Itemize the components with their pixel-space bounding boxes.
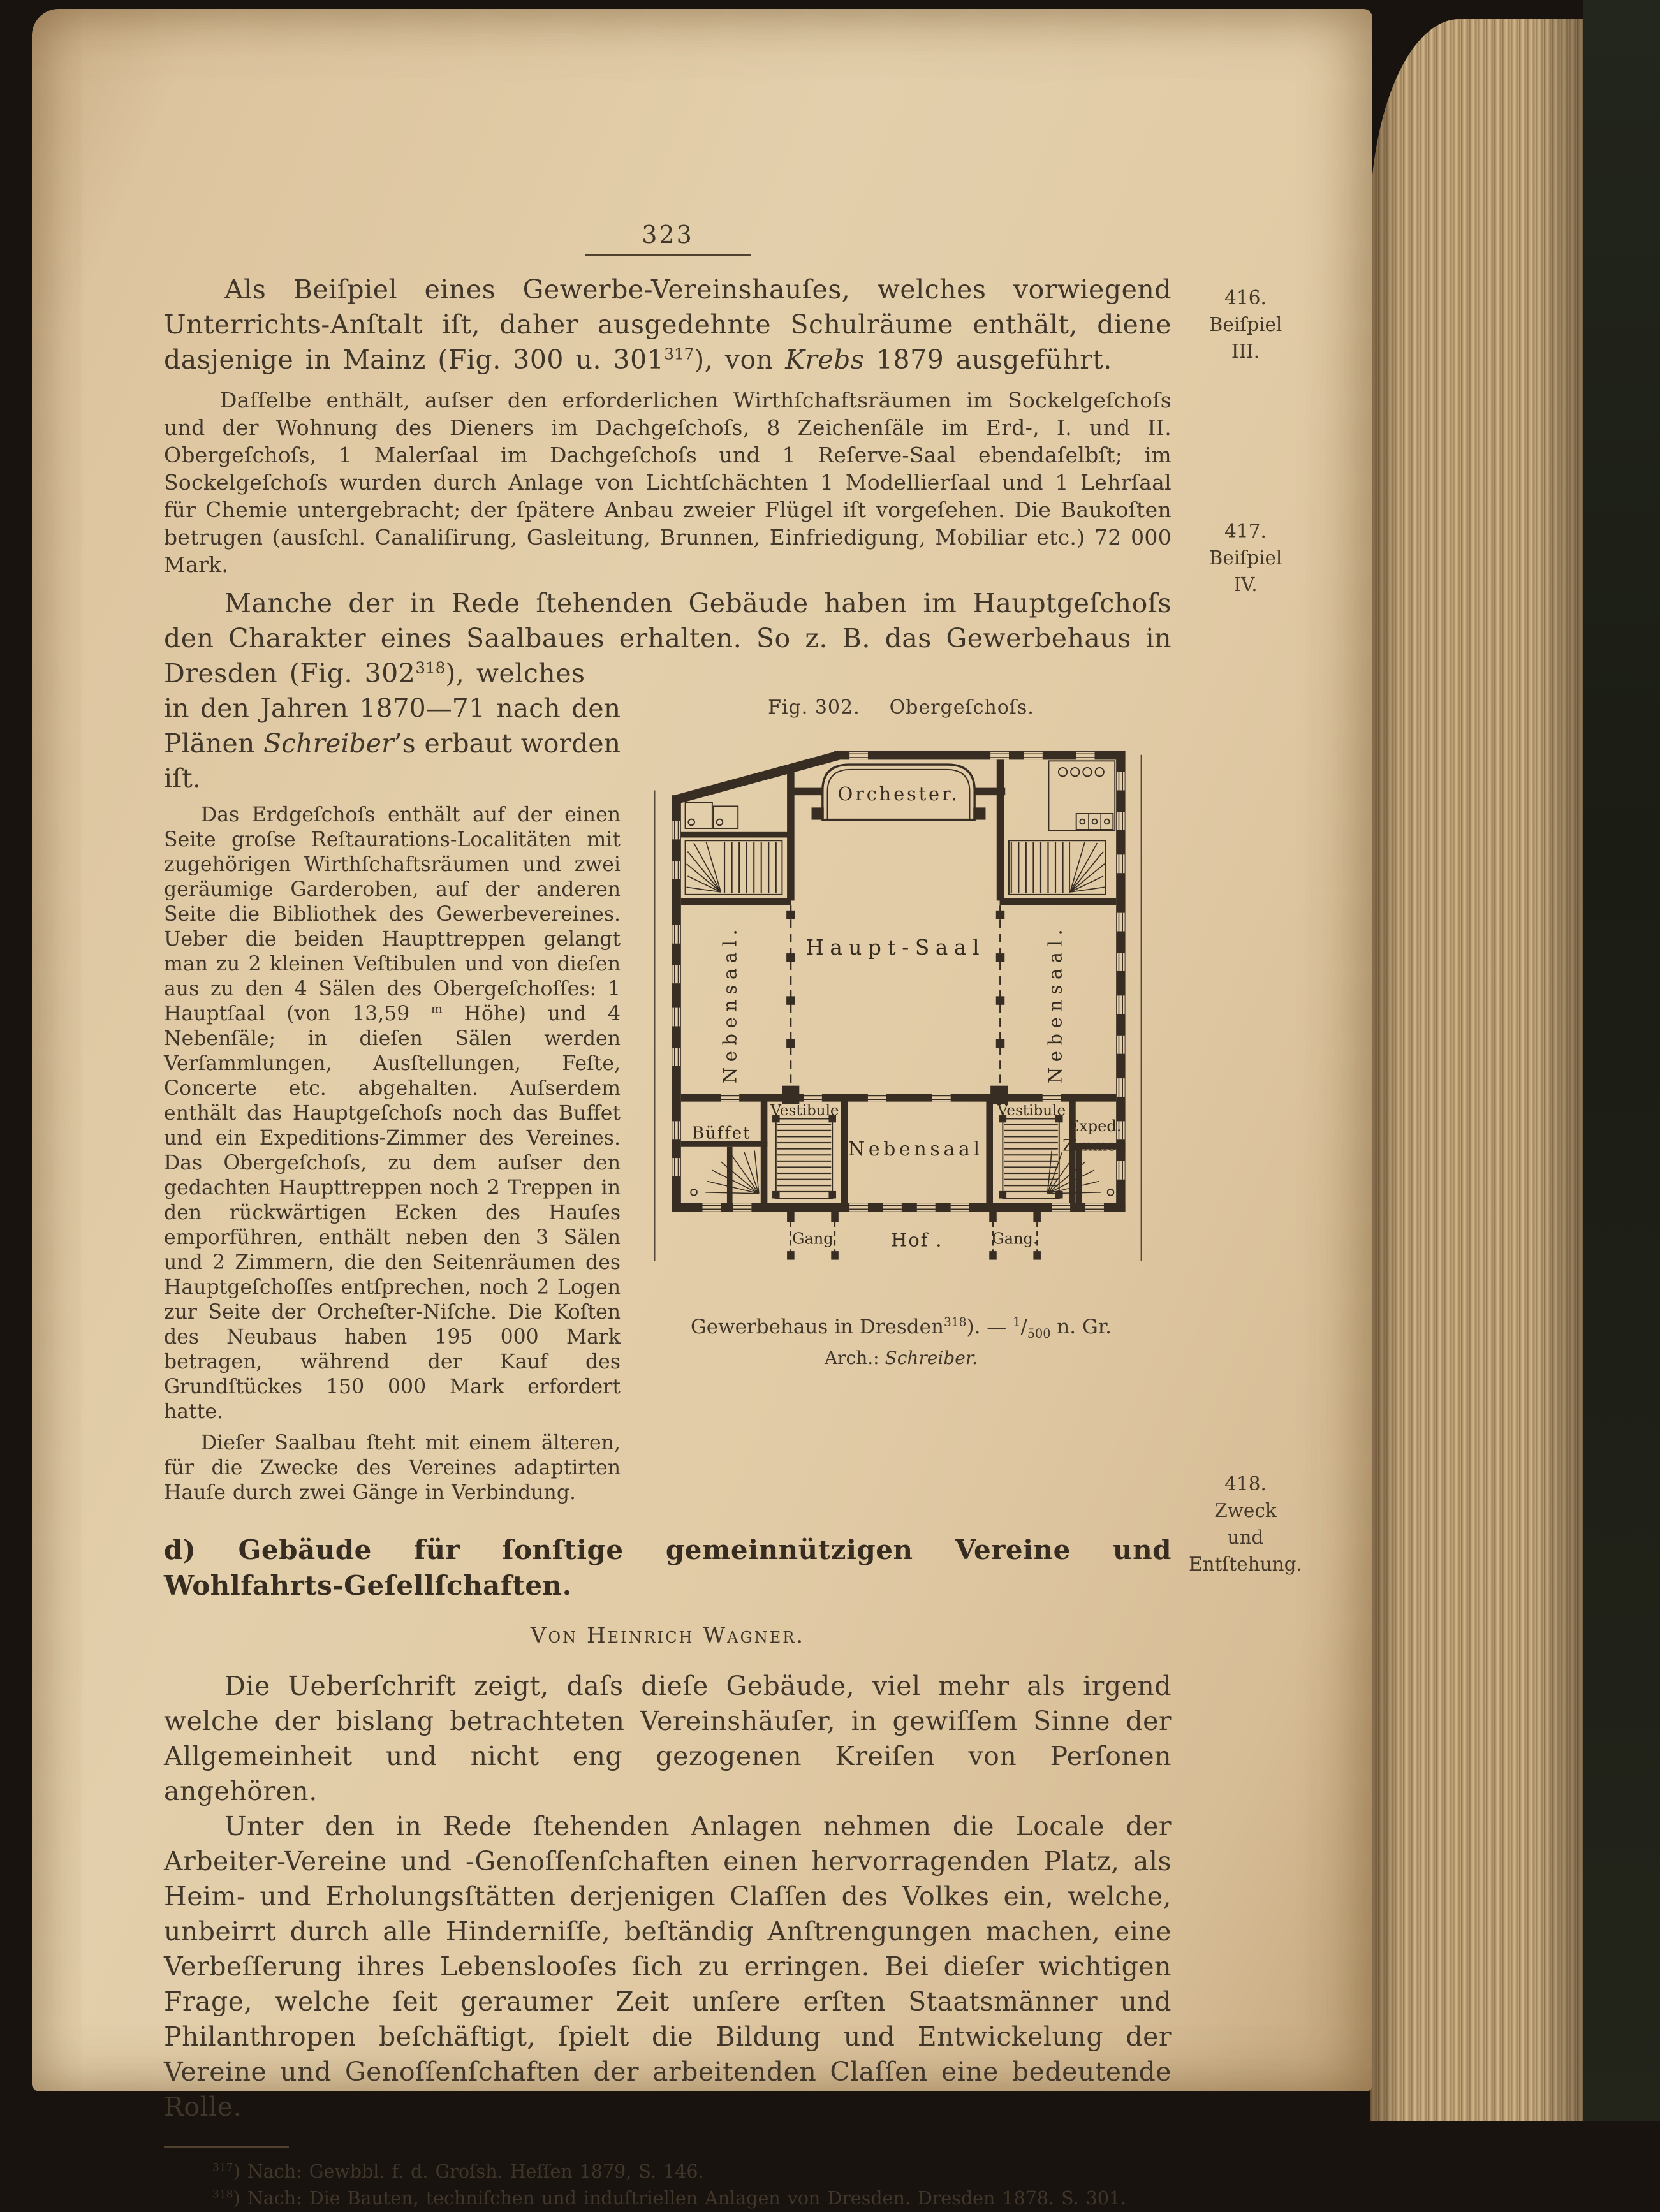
paragraph-text: Höhe) und 4 Nebenſäle; in dieſen Sälen w… — [164, 1002, 621, 1423]
margin-note-line: und — [1172, 1524, 1319, 1551]
footnote-rule — [164, 2146, 289, 2148]
footnote-ref-317: 317 — [664, 344, 694, 363]
margin-note-line: Beiſpiel — [1172, 311, 1319, 338]
book-page: 323 Als Beiſpiel eines Gewerbe-Vereinsha… — [32, 9, 1372, 2091]
margin-note-line: IV. — [1172, 571, 1319, 598]
margin-note-417: 417. Beiſpiel IV. — [1172, 518, 1319, 598]
stair-top-right — [997, 759, 1116, 905]
figure-storey-label: Obergeſchoſs. — [890, 696, 1034, 719]
left-column: in den Jahren 1870—71 nach den Plänen Sc… — [164, 691, 621, 1505]
footnote-318: 318) Nach: Die Bauten, techniſchen und i… — [212, 2185, 1172, 2212]
column-figure-row: in den Jahren 1870—71 nach den Plänen Sc… — [164, 691, 1172, 1505]
footnote-text: ) Nach: Gewbbl. f. d. Groſsh. Heſſen 187… — [233, 2161, 704, 2182]
book-fore-edge — [1370, 19, 1607, 2121]
architect-name: Schreiber — [263, 728, 394, 759]
figure-credit: Arch.: Schreiber. — [621, 1347, 1182, 1368]
paragraph-text: ), von — [694, 344, 785, 375]
figure-caption: Gewerbehaus in Dresden318). — 1/500 n. G… — [621, 1315, 1182, 1338]
paragraph-erdgeschoss: Das Erdgeſchoſs enthält auf der einen Se… — [164, 803, 621, 1425]
room-label-nebensaal-center: Nebensaal — [848, 1138, 983, 1161]
text-block: 323 Als Beiſpiel eines Gewerbe-Vereinsha… — [164, 221, 1172, 2212]
margin-note-416: 416. Beiſpiel III. — [1172, 284, 1319, 365]
footnote-ref-318: 318 — [415, 658, 445, 677]
margin-note-line: Beiſpiel — [1172, 545, 1319, 571]
footnote-317: 317) Nach: Gewbbl. f. d. Groſsh. Heſſen … — [212, 2158, 1172, 2185]
margin-note-number: 416. — [1172, 284, 1319, 311]
figure-title: Fig. 302.Obergeſchoſs. — [621, 696, 1182, 719]
stair-vestibule-left — [772, 1115, 836, 1199]
architect-name: Krebs — [785, 344, 864, 375]
credit-text: Arch.: — [825, 1347, 885, 1368]
paragraph-text: Manche der in Rede ſtehenden Gebäude hab… — [164, 588, 1172, 689]
margin-note-line: III. — [1172, 338, 1319, 365]
page-number: 323 — [585, 221, 751, 256]
room-label-vestibule-left: Vestibule — [770, 1102, 839, 1119]
footnote-number: 317 — [212, 2162, 233, 2174]
page-number-text: 323 — [642, 221, 694, 249]
paragraph-dresden-cont: in den Jahren 1870—71 nach den Plänen Sc… — [164, 691, 621, 796]
section-heading: d) Gebäude für ſonſtige gemeinnützigen V… — [164, 1532, 1172, 1604]
room-label-buffet: Büffet — [692, 1124, 751, 1143]
footnote-ref-318-caption: 318 — [944, 1316, 967, 1329]
caption-text: ). — — [966, 1315, 1013, 1338]
paragraph-text: ), welches — [445, 658, 585, 689]
meter-superscript: m — [431, 1002, 443, 1016]
margin-note-line: Entſtehung. — [1172, 1551, 1319, 1578]
paragraph-text: 1879 ausgeführt. — [864, 344, 1112, 375]
room-label-hof: Hof . — [891, 1229, 943, 1250]
margin-note-number: 417. — [1172, 518, 1319, 545]
separator-wall — [681, 1086, 1116, 1104]
section-byline: Von Heinrich Wagner. — [164, 1623, 1172, 1648]
margin-note-number: 418. — [1172, 1470, 1319, 1497]
book-cover-edge — [1583, 0, 1660, 2121]
room-label-nebensaal-left: Nebensaal. — [719, 924, 740, 1083]
paragraph-dresden: Manche der in Rede ſtehenden Gebäude hab… — [164, 586, 1172, 691]
footnote-text: ) Nach: Die Bauten, techniſchen und indu… — [233, 2188, 1127, 2209]
figure-column: Fig. 302.Obergeſchoſs. — [621, 691, 1182, 1368]
figure-number: Fig. 302. — [768, 696, 860, 719]
room-label-nebensaal-right: Nebensaal. — [1045, 924, 1066, 1083]
architect-name: Schreiber. — [885, 1347, 978, 1368]
room-label-hauptsaal: Haupt-Saal — [805, 935, 985, 960]
room-label-gang-right: Gang. — [992, 1230, 1038, 1248]
scale-denominator: 500 — [1027, 1326, 1051, 1341]
paragraph-text: Das Erdgeſchoſs enthält auf der einen Se… — [164, 803, 621, 1025]
floor-plan: Orchester. Haupt-Saal Nebensaal. Nebensa… — [647, 729, 1150, 1275]
room-label-gang-left: Gang — [792, 1230, 833, 1248]
hall-colonnades — [786, 905, 1004, 1095]
room-label-vestibule-right: Vestibule — [997, 1102, 1066, 1119]
caption-text: Gewerbehaus in Dresden — [691, 1315, 944, 1338]
room-label-exped-1: Exped. — [1068, 1117, 1122, 1135]
paragraph-arbeitervereine: Unter den in Rede ſtehenden Anlagen nehm… — [164, 1809, 1172, 2125]
stair-corner-bottom-left — [691, 1151, 759, 1196]
paragraph-intro: Als Beiſpiel eines Gewerbe-Vereinshauſes… — [164, 272, 1172, 377]
caption-text: n. Gr. — [1050, 1315, 1112, 1338]
paragraph-ueberschrift: Die Ueberſchrift zeigt, daſs dieſe Gebäu… — [164, 1669, 1172, 1809]
scale-numerator: 1 — [1013, 1315, 1020, 1329]
room-label-exped-2: Zimmer. — [1062, 1137, 1127, 1155]
margin-note-418: 418. Zweck und Entſtehung. — [1172, 1470, 1319, 1578]
paragraph-saalbau: Dieſer Saalbau ſteht mit einem älteren, … — [164, 1431, 621, 1505]
paragraph-petit-mainz: Daſſelbe enthält, auſser den erforderlic… — [164, 386, 1172, 578]
room-label-orchester: Orchester. — [838, 783, 960, 805]
margin-note-line: Zweck — [1172, 1497, 1319, 1524]
footnote-number: 318 — [212, 2188, 233, 2201]
